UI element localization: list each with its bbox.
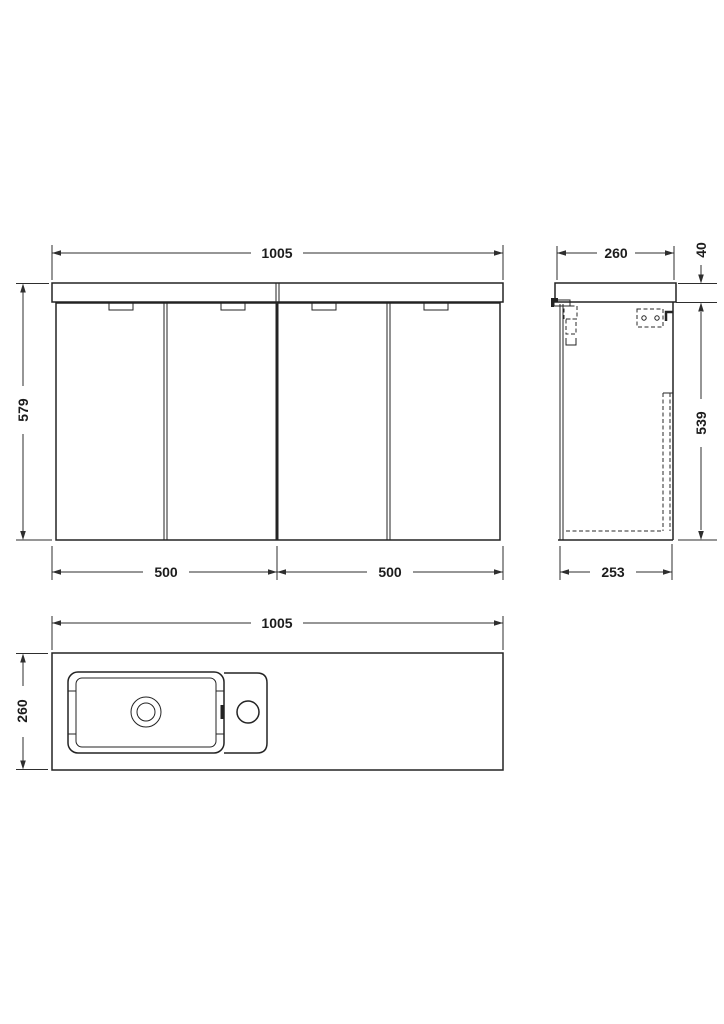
plan-basin [68, 672, 224, 753]
technical-drawing-page: 1005 579 500 500 [0, 0, 724, 1024]
basin-overflow-slot [221, 705, 224, 719]
dim-front-left-unit: 500 [52, 546, 277, 580]
side-hinge-bracket [566, 338, 576, 345]
side-hanger-hook [666, 312, 673, 321]
dim-front-overall-height: 579 [15, 284, 52, 541]
side-worktop [555, 283, 676, 302]
tap-deck-outline [224, 673, 267, 753]
vanity-unit-drawing: 1005 579 500 500 [0, 0, 724, 1024]
door-handle-recess-2 [221, 303, 245, 310]
bracket-screw-right [655, 316, 659, 320]
door-handle-recess-4 [424, 303, 448, 310]
dim-label-front-height: 579 [15, 398, 31, 422]
dim-label-plan-depth: 260 [14, 699, 30, 723]
front-worktop [52, 283, 503, 302]
dim-label-cabinet-depth: 253 [601, 564, 625, 580]
front-center-joint [276, 303, 279, 540]
plan-tap-deck [224, 673, 267, 753]
dim-label-plan-width: 1005 [261, 615, 292, 631]
basin-inner-bowl [76, 678, 216, 747]
dim-label-cabinet-height: 539 [693, 411, 709, 435]
plan-view [52, 653, 503, 770]
dim-label-left-unit: 500 [154, 564, 178, 580]
dim-side-worktop-thickness: 40 [676, 235, 717, 312]
basin-outer-rim [68, 672, 224, 753]
side-hinge-dashed [564, 306, 577, 334]
dim-label-right-unit: 500 [378, 564, 402, 580]
dim-front-right-unit: 500 [277, 546, 503, 580]
bracket-screw-left [642, 316, 646, 320]
dim-plan-overall-depth: 260 [14, 654, 48, 770]
basin-waste-outer [131, 697, 161, 727]
dim-side-cabinet-depth: 253 [560, 544, 672, 580]
dim-side-cabinet-height: 539 [678, 312, 717, 540]
dim-side-depth: 260 [557, 245, 674, 280]
dim-label-side-depth: 260 [604, 245, 628, 261]
dim-label-front-width: 1005 [261, 245, 292, 261]
front-view [52, 283, 503, 540]
dim-front-overall-width: 1005 [52, 245, 503, 280]
dim-label-worktop-thickness: 40 [693, 242, 709, 258]
tap-hole [237, 701, 259, 723]
side-view [551, 283, 676, 540]
basin-waste-inner [137, 703, 155, 721]
dim-plan-overall-width: 1005 [52, 615, 503, 650]
door-handle-recess-3 [312, 303, 336, 310]
door-handle-recess-1 [109, 303, 133, 310]
